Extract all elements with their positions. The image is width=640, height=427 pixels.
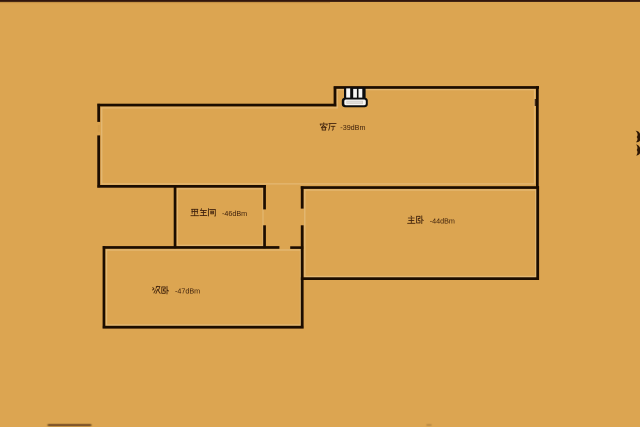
svg-text:-39dBm: -39dBm (340, 123, 365, 132)
svg-text:-47dBm: -47dBm (175, 287, 200, 296)
svg-text:-44dBm: -44dBm (430, 217, 455, 226)
svg-text:-46dBm: -46dBm (222, 209, 247, 218)
